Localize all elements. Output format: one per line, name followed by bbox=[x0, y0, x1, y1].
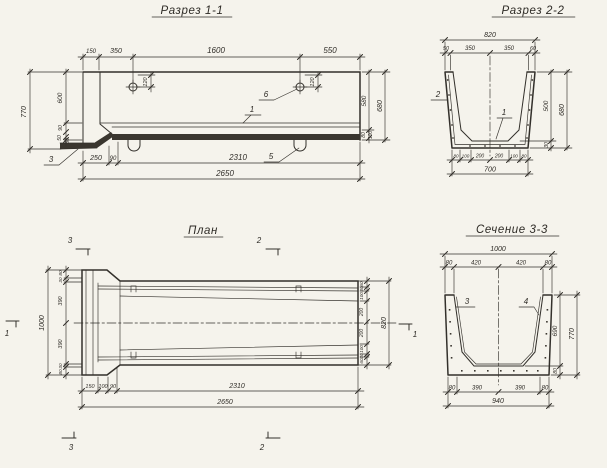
dim-label: 80 bbox=[58, 369, 63, 375]
marker-3-top: 3 bbox=[68, 236, 73, 245]
dim-label: 80 bbox=[542, 386, 549, 392]
dim-label: 80 bbox=[553, 368, 559, 374]
view-title: План bbox=[188, 225, 218, 237]
dim-label: 390 bbox=[58, 295, 64, 305]
dim-label: 80 bbox=[446, 261, 453, 267]
dim-label: 350 bbox=[110, 48, 122, 55]
dim-label: 60 bbox=[530, 46, 537, 52]
dim-label: 580 bbox=[361, 95, 368, 106]
marker-1-left: 1 bbox=[5, 329, 9, 338]
dim-label: 50 bbox=[57, 135, 63, 141]
dim-label: 680 bbox=[559, 104, 566, 116]
dim-chain-left: 1000 80 30 390 390 30 80 bbox=[39, 266, 82, 379]
dim-label: 100 bbox=[510, 154, 518, 159]
dim-chain-right: 500 30 680 bbox=[520, 70, 572, 152]
dim-label: 770 bbox=[21, 106, 28, 118]
dim-label: 2650 bbox=[216, 399, 233, 406]
drawing-canvas: Разрез 1-1 150 350 1600 550 bbox=[0, 0, 607, 468]
callout-5: 5 bbox=[269, 152, 274, 161]
callout-4: 4 bbox=[524, 297, 529, 306]
marker-2-bottom: 2 bbox=[259, 443, 265, 452]
callout-1: 1 bbox=[502, 108, 506, 117]
dim-label: 90 bbox=[58, 125, 64, 131]
dim-label: 80 bbox=[521, 154, 527, 159]
dim-label: 2310 bbox=[228, 153, 247, 162]
dim-label: 100 bbox=[368, 131, 374, 140]
dim-chain-bottom: 150 100 90 2310 2650 bbox=[78, 367, 364, 410]
dim-label: 30 bbox=[58, 277, 63, 283]
dim-label: 120 bbox=[143, 76, 149, 86]
dim-label: 2650 bbox=[215, 169, 234, 178]
dim-label: 30 bbox=[58, 363, 63, 369]
dim-label: 700 bbox=[484, 167, 496, 174]
callout-3: 3 bbox=[465, 297, 470, 306]
view-razrez-2-2: Разрез 2-2 820 50 350 350 60 bbox=[431, 5, 575, 177]
dim-label: 30 bbox=[359, 353, 364, 359]
dim-label: 390 bbox=[515, 386, 526, 392]
dim-label: 60 bbox=[359, 358, 364, 364]
dim-label: 100 bbox=[98, 384, 108, 390]
marker-3-bottom: 3 bbox=[69, 443, 74, 452]
dim-label: 150 bbox=[85, 384, 95, 390]
dim-label: 770 bbox=[569, 328, 576, 340]
dim-label: 200 bbox=[475, 154, 485, 160]
dim-label: 80 bbox=[449, 386, 456, 392]
dim-label: 60 bbox=[359, 281, 364, 287]
dim-hole-120: 120 120 bbox=[137, 73, 322, 93]
dim-label: 500 bbox=[543, 100, 550, 111]
dim-label: 680 bbox=[377, 100, 384, 112]
callout-6: 6 bbox=[264, 90, 269, 99]
dim-label: 100 bbox=[359, 292, 364, 300]
dim-label: 390 bbox=[472, 386, 483, 392]
callouts-razrez-2-2: 2 1 bbox=[431, 90, 512, 139]
dim-label: 90 bbox=[110, 156, 117, 162]
dim-label: 250 bbox=[89, 155, 102, 162]
dim-label: 100 bbox=[462, 154, 470, 159]
dim-label: 550 bbox=[323, 46, 337, 55]
section-markers: 3 2 3 2 1 1 bbox=[5, 236, 417, 452]
dim-chain-left: 770 600 90 50 30 bbox=[21, 69, 82, 153]
dim-label: 50 bbox=[443, 46, 450, 52]
view-title: Разрез 2-2 bbox=[502, 5, 565, 17]
dim-label: 30 bbox=[544, 142, 550, 148]
dim-label: 820 bbox=[381, 317, 388, 329]
dim-label: 200 bbox=[494, 154, 504, 160]
dim-label: 350 bbox=[504, 46, 515, 52]
dim-label: 2310 bbox=[228, 383, 245, 390]
callout-3: 3 bbox=[49, 155, 54, 164]
marker-2-top: 2 bbox=[256, 236, 262, 245]
dim-label: 200 bbox=[359, 329, 365, 339]
callouts-sechenie-3-3: 3 4 bbox=[456, 297, 539, 315]
dim-label: 80 bbox=[453, 154, 459, 159]
lifting-loops bbox=[128, 140, 306, 151]
view-title: Разрез 1-1 bbox=[161, 5, 224, 17]
marker-1-right: 1 bbox=[413, 330, 417, 339]
dim-chain-bottom: 250 90 2310 2650 bbox=[78, 142, 365, 182]
dim-chain-right: 690 80 770 bbox=[525, 291, 580, 379]
dim-chain-top: 150 350 1600 550 bbox=[78, 46, 365, 82]
dim-label: 820 bbox=[484, 32, 496, 39]
drawing-sheet: Разрез 1-1 150 350 1600 550 bbox=[0, 0, 607, 468]
dim-label: 100 bbox=[359, 345, 364, 353]
plan-outline bbox=[82, 270, 358, 375]
dim-label: 1600 bbox=[207, 46, 225, 55]
dim-label: 150 bbox=[86, 49, 97, 55]
dim-label: 80 bbox=[545, 261, 552, 267]
dim-label: 30 bbox=[359, 286, 364, 292]
dim-label: 30 bbox=[65, 138, 71, 144]
view-razrez-1-1: Разрез 1-1 150 350 1600 550 bbox=[21, 5, 390, 182]
dim-label: 350 bbox=[465, 46, 476, 52]
dim-label: 690 bbox=[552, 325, 559, 336]
dim-label: 80 bbox=[58, 270, 63, 276]
view-sechenie-3-3: Сечение 3-3 1000 80 420 420 80 bbox=[440, 224, 580, 409]
dim-label: 1000 bbox=[39, 315, 46, 331]
callout-1: 1 bbox=[250, 105, 254, 114]
dim-chain-bottom: 80 100 200 200 100 80 700 bbox=[447, 150, 533, 177]
dim-label: 390 bbox=[58, 338, 64, 348]
dim-label: 600 bbox=[57, 92, 64, 103]
view-title: Сечение 3-3 bbox=[476, 224, 548, 236]
floor-slab-band bbox=[112, 134, 360, 140]
dim-label: 120 bbox=[310, 76, 316, 86]
dim-label: 80 bbox=[361, 132, 367, 138]
dim-label: 200 bbox=[359, 308, 365, 318]
dim-chain-right: 580 680 80 100 bbox=[361, 70, 390, 144]
dim-label: 1000 bbox=[490, 246, 506, 253]
dim-label: 420 bbox=[516, 261, 527, 267]
callout-2: 2 bbox=[435, 90, 441, 99]
dim-label: 940 bbox=[492, 398, 504, 405]
view-plan: План 1000 80 30 390 390 30 80 60 30 bbox=[5, 225, 417, 452]
dim-label: 420 bbox=[471, 261, 482, 267]
dim-label: 90 bbox=[110, 384, 117, 390]
